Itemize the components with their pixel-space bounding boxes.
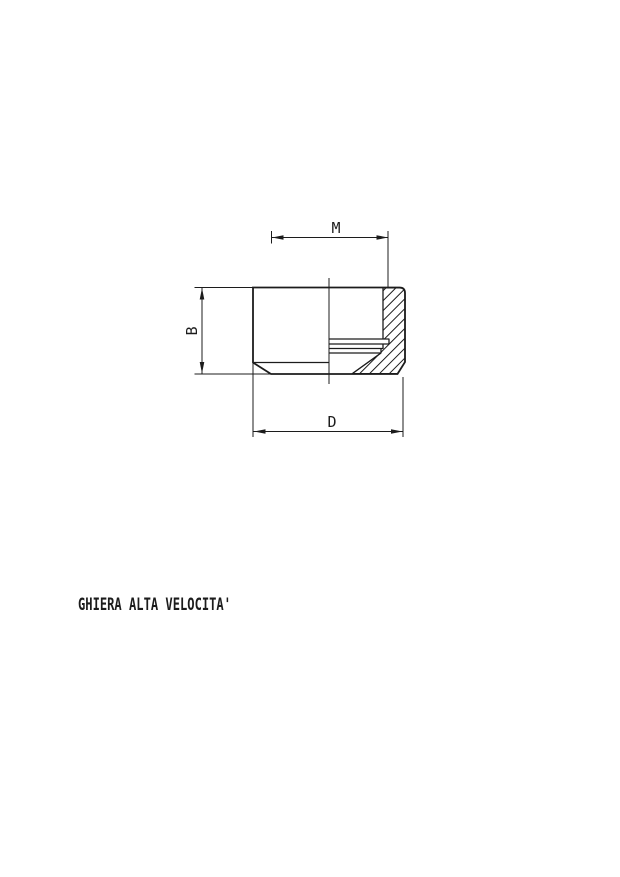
arrowheads-group	[200, 235, 403, 434]
dim-b-arrow-up-icon	[200, 288, 205, 300]
section-hatch-area	[353, 288, 406, 374]
dimension-m	[272, 231, 389, 287]
dim-b-label: B	[183, 326, 201, 335]
dim-d-arrow-left-icon	[254, 429, 266, 434]
dim-m-label: M	[331, 219, 340, 237]
technical-drawing-svg: M B D GHIERA ALTA VELOCITA'	[0, 0, 620, 877]
dim-d-label: D	[327, 413, 336, 431]
dim-d-arrow-right-icon	[391, 429, 403, 434]
linework-group	[195, 231, 406, 437]
drawing-title: GHIERA ALTA VELOCITA'	[78, 595, 231, 615]
drawing-sheet: M B D GHIERA ALTA VELOCITA'	[0, 0, 620, 877]
dim-m-arrow-left-icon	[272, 235, 284, 240]
dim-b-arrow-down-icon	[200, 362, 205, 374]
dim-m-arrow-right-icon	[377, 235, 389, 240]
interior-edges	[254, 288, 390, 374]
labels-group: M B D GHIERA ALTA VELOCITA'	[78, 219, 341, 615]
dimension-b	[195, 288, 272, 375]
